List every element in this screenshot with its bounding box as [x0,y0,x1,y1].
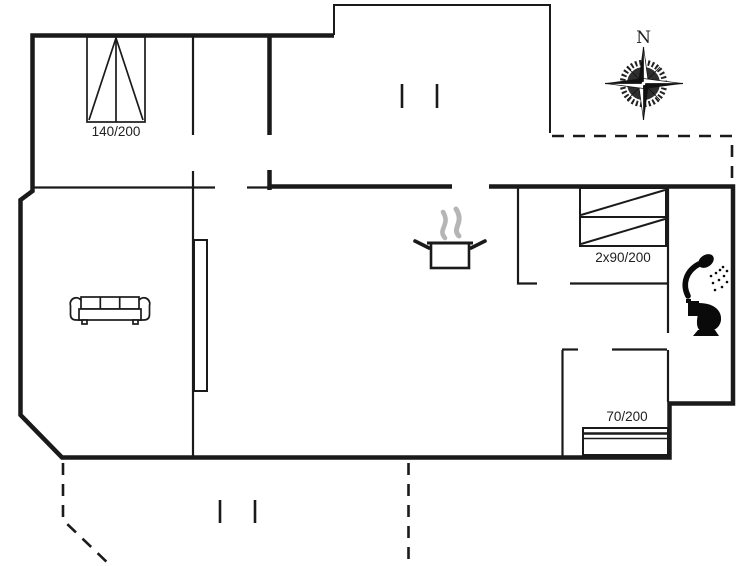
pot-handle-left [415,241,429,248]
pot-body [431,243,469,268]
annex-walls [334,5,550,133]
dashed-roof-right [552,136,732,182]
toilet-base [693,330,719,336]
floor-plan-drawing: 140/200 2x90/200 70/200 [0,0,755,566]
steam-wisp [456,209,459,236]
toilet-cistern [688,301,699,316]
built-in-cabinet [194,240,207,391]
shower-spray [710,266,729,292]
dashed-terrace-left [63,463,112,566]
bunk-bed-label: 2x90/200 [595,250,651,265]
single-bed-icon [583,428,668,455]
sofa-seat [79,309,141,320]
bunk-bed-icon [580,188,666,246]
double-bed-label: 140/200 [92,124,141,139]
toilet-bowl [697,303,721,332]
steam-wisp [442,212,445,238]
sofa-icon [70,297,150,324]
compass-rose-icon: N [605,28,683,120]
sofa-foot [133,320,138,324]
shower-head [696,251,717,271]
floor-plan: 140/200 2x90/200 70/200 [0,0,755,566]
wall-kitchen-side [518,188,537,284]
compass-hub [642,82,646,86]
shower-icon [685,251,728,296]
toilet-flush [686,299,691,303]
double-bed-icon [87,37,145,122]
pot-handle-right [471,241,485,248]
toilet-icon [686,299,721,336]
annex-outline [334,5,550,133]
cooking-pot-steam-icon [415,209,485,268]
sofa-back-cushions [81,297,139,309]
single-bed-label: 70/200 [606,409,647,424]
compass-north-label: N [636,28,651,48]
sofa-foot [82,320,87,324]
shower-hose [685,264,699,296]
